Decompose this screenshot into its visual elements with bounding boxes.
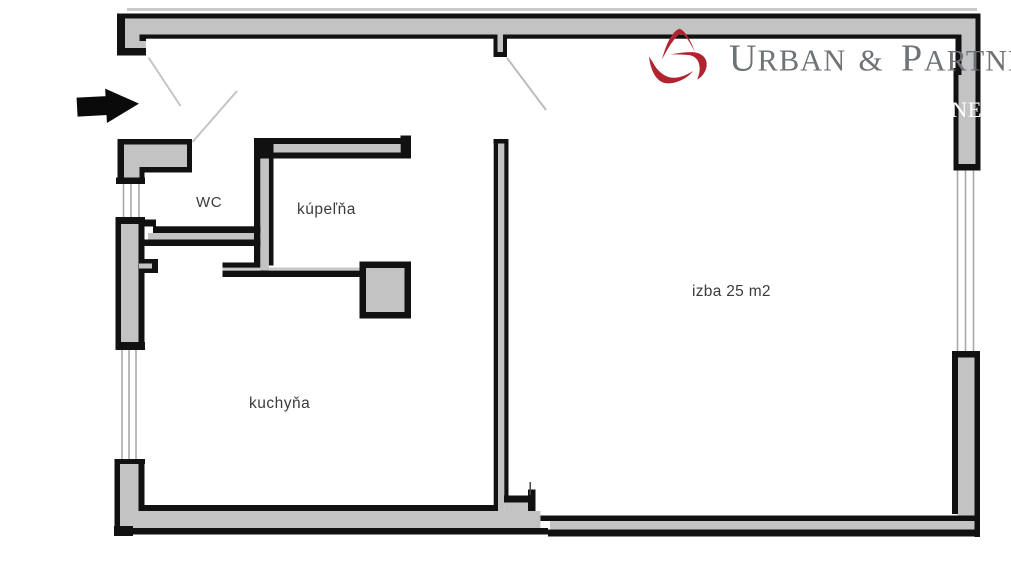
- svg-text:kúpeľňa: kúpeľňa: [297, 201, 356, 218]
- svg-text:WC: WC: [196, 194, 222, 211]
- svg-text:P: P: [901, 38, 922, 80]
- svg-text:izba 25 m2: izba 25 m2: [692, 283, 771, 300]
- svg-text:&: &: [859, 43, 883, 78]
- svg-text:RBAN: RBAN: [758, 44, 847, 78]
- svg-text:kuchyňa: kuchyňa: [249, 395, 310, 412]
- svg-text:NEHNUTEĽNOSTI: NEHNUTEĽNOSTI: [951, 97, 1011, 122]
- svg-text:U: U: [729, 38, 756, 80]
- svg-text:ARTNER: ARTNER: [924, 45, 1011, 78]
